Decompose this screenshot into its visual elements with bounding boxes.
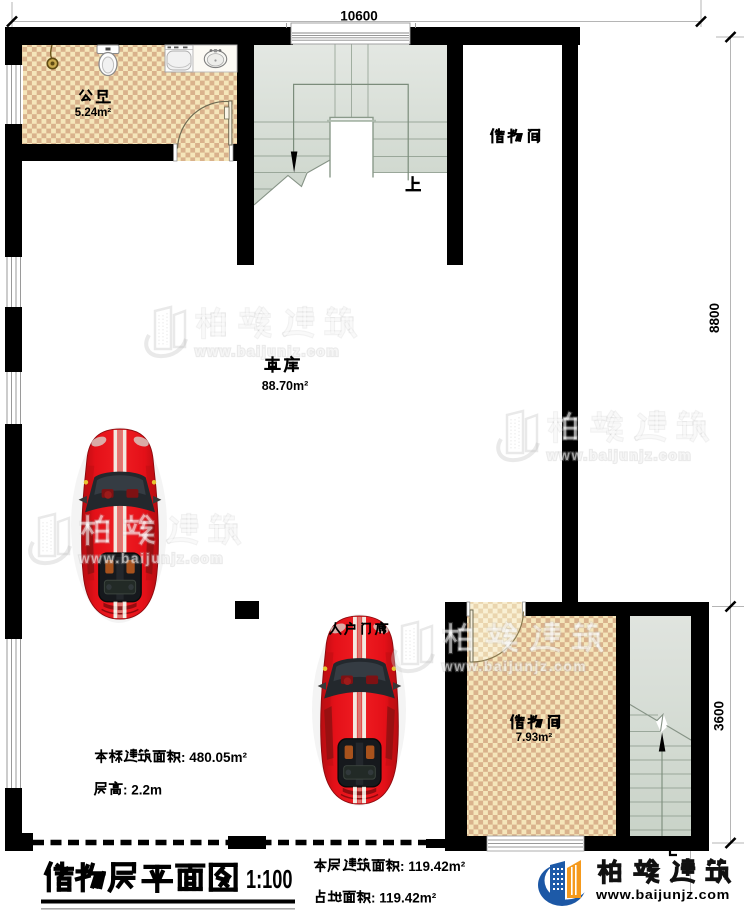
svg-text:1:100: 1:100 bbox=[246, 865, 293, 894]
svg-text:8800: 8800 bbox=[707, 303, 722, 333]
svg-text:5.24m²: 5.24m² bbox=[75, 107, 112, 119]
svg-text:: 2.2m: : 2.2m bbox=[123, 783, 162, 798]
svg-text:7.93m²: 7.93m² bbox=[516, 732, 553, 744]
svg-text:10600: 10600 bbox=[340, 9, 378, 24]
svg-text:88.70m²: 88.70m² bbox=[262, 379, 309, 393]
svg-text:: 119.42m²: : 119.42m² bbox=[371, 891, 437, 906]
svg-text:www.baijunjz.com: www.baijunjz.com bbox=[595, 887, 730, 902]
svg-text:: 480.05m²: : 480.05m² bbox=[181, 750, 248, 765]
svg-text:: 119.42m²: : 119.42m² bbox=[400, 859, 466, 874]
svg-text:3600: 3600 bbox=[712, 701, 727, 731]
